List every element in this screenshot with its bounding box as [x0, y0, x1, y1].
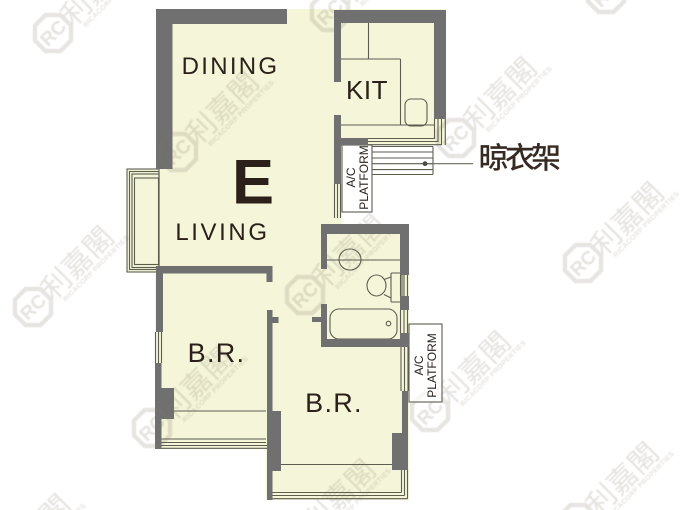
svg-text:DINING: DINING	[182, 53, 280, 80]
svg-text:B.R.: B.R.	[305, 388, 363, 418]
svg-text:B.R.: B.R.	[188, 338, 246, 368]
svg-text:E: E	[232, 148, 274, 218]
svg-text:KIT: KIT	[346, 75, 388, 105]
svg-text:LIVING: LIVING	[175, 219, 269, 246]
